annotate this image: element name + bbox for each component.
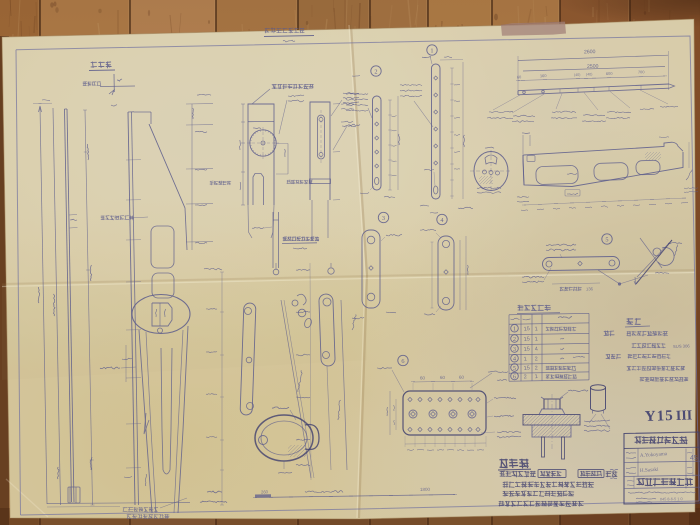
- svg-text:2: 2: [374, 68, 377, 75]
- svg-text:260: 260: [261, 489, 269, 494]
- svg-text:1: 1: [513, 326, 516, 333]
- svg-text:6: 6: [513, 373, 516, 380]
- svg-text:60: 60: [440, 375, 446, 380]
- svg-text:45: 45: [690, 455, 698, 462]
- svg-text:(40): (40): [574, 73, 581, 77]
- svg-text:60: 60: [459, 375, 465, 380]
- svg-text:15: 15: [523, 346, 530, 353]
- svg-text:15: 15: [523, 326, 530, 333]
- svg-text:3: 3: [382, 215, 385, 222]
- svg-text:160: 160: [540, 73, 547, 78]
- svg-text:III: III: [676, 408, 693, 424]
- svg-text:700: 700: [638, 69, 645, 74]
- svg-text:3: 3: [513, 346, 516, 353]
- svg-text:136: 136: [586, 286, 594, 291]
- svg-text:15: 15: [523, 336, 530, 343]
- svg-text:1: 1: [430, 47, 433, 54]
- svg-text:2: 2: [513, 336, 516, 343]
- svg-text:(40): (40): [586, 72, 593, 76]
- svg-text:600: 600: [606, 71, 613, 76]
- svg-text:60: 60: [420, 375, 426, 380]
- svg-text:15: 15: [523, 365, 530, 372]
- svg-text:1800: 1800: [420, 487, 431, 492]
- svg-text:2500: 2500: [587, 64, 599, 70]
- svg-text:5: 5: [513, 365, 516, 372]
- svg-text:045 8-6-5 1 0: 045 8-6-5 1 0: [660, 497, 683, 501]
- svg-text:Y15: Y15: [645, 408, 674, 425]
- svg-text:5: 5: [605, 236, 608, 243]
- svg-text:SUS 306: SUS 306: [673, 343, 691, 349]
- svg-text:2600: 2600: [584, 49, 596, 55]
- svg-text:6: 6: [401, 358, 404, 365]
